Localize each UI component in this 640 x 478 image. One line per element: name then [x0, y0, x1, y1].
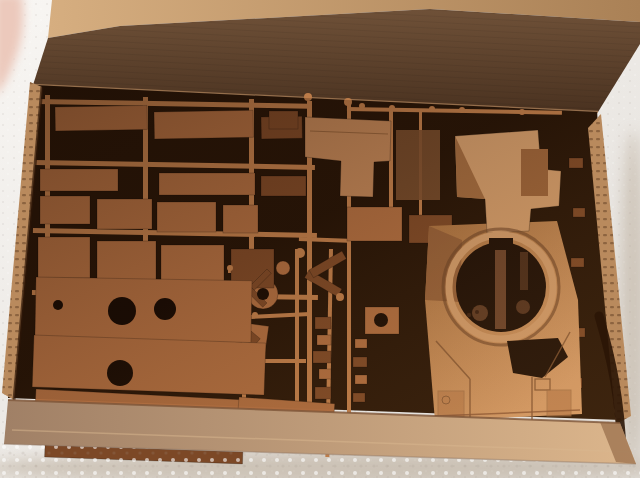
- photo-model-kit-box: [0, 0, 640, 478]
- ambient-light-overlay: [8, 85, 622, 420]
- photo-canvas: [0, 0, 640, 478]
